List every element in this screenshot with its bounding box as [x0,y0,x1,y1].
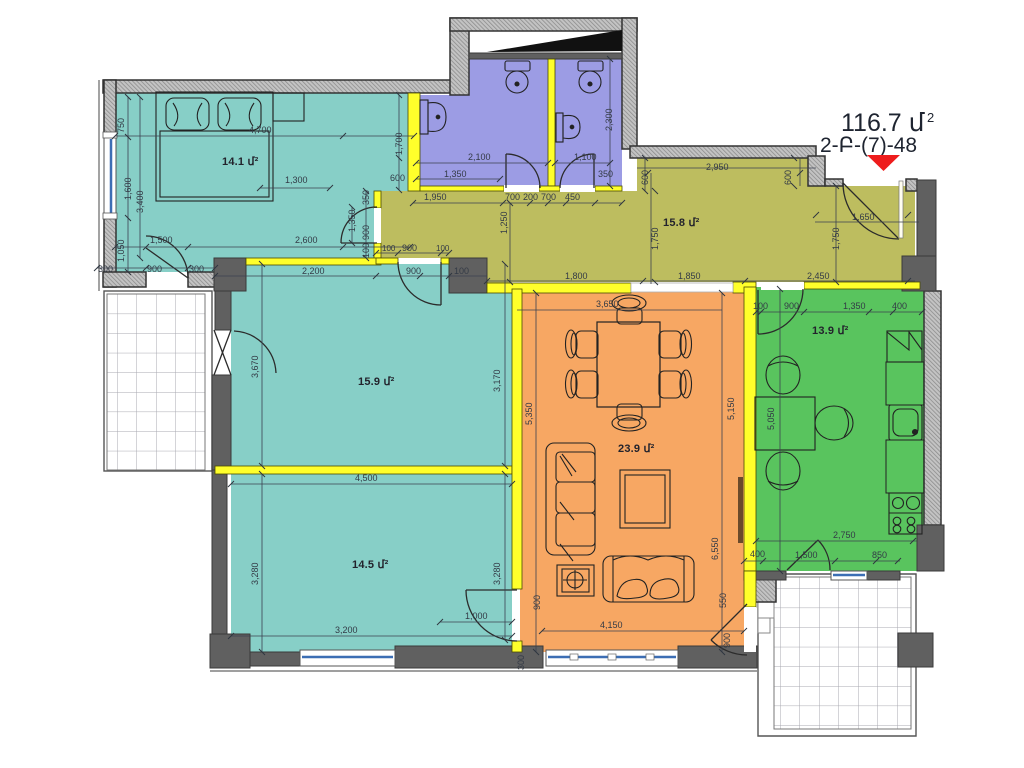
svg-text:300: 300 [189,264,204,274]
svg-text:450: 450 [565,192,580,202]
svg-text:5,150: 5,150 [726,397,736,420]
svg-text:13.9 մ²: 13.9 մ² [812,325,849,337]
svg-text:1,100: 1,100 [574,152,597,162]
svg-text:100: 100 [361,243,371,258]
svg-text:15.9 մ²: 15.9 մ² [358,376,395,388]
svg-text:3,400: 3,400 [135,190,145,213]
svg-text:3,280: 3,280 [492,562,502,585]
svg-text:750: 750 [116,118,126,133]
svg-text:100: 100 [454,266,469,276]
svg-text:2-Բ-(7)-48: 2-Բ-(7)-48 [820,134,917,157]
svg-text:350: 350 [598,169,613,179]
svg-text:850: 850 [872,550,887,560]
svg-text:1,350: 1,350 [347,209,357,232]
svg-text:14.5 մ²: 14.5 մ² [352,559,389,571]
svg-text:1,850: 1,850 [678,271,701,281]
svg-text:116.7 մ: 116.7 մ [841,109,926,137]
svg-text:3,280: 3,280 [250,562,260,585]
svg-text:4,700: 4,700 [249,125,272,135]
svg-text:6,550: 6,550 [710,537,720,560]
svg-text:2,100: 2,100 [468,152,491,162]
svg-text:1,350: 1,350 [843,301,866,311]
svg-text:900: 900 [406,266,421,276]
svg-text:900: 900 [722,633,732,648]
svg-text:23.9 մ²: 23.9 մ² [618,443,655,455]
svg-text:3,650: 3,650 [596,299,619,309]
svg-text:1,600: 1,600 [123,177,133,200]
svg-text:1,800: 1,800 [565,271,588,281]
svg-text:2: 2 [927,110,934,125]
svg-text:3,670: 3,670 [250,355,260,378]
svg-text:900: 900 [532,595,542,610]
svg-text:1,500: 1,500 [795,550,818,560]
svg-text:100: 100 [753,301,768,311]
svg-text:1,750: 1,750 [650,227,660,250]
svg-text:900: 900 [147,264,162,274]
svg-text:5,050: 5,050 [766,407,776,430]
svg-text:1,650: 1,650 [852,212,875,222]
svg-text:100: 100 [382,244,396,253]
svg-text:14.1 մ²: 14.1 մ² [222,156,259,168]
svg-text:350: 350 [361,190,371,205]
svg-text:1,300: 1,300 [285,175,308,185]
svg-text:400: 400 [892,301,907,311]
svg-text:1,250: 1,250 [499,211,509,234]
svg-text:900: 900 [361,225,371,240]
svg-text:300: 300 [98,264,113,274]
svg-text:2,300: 2,300 [604,108,614,131]
svg-text:550: 550 [718,593,728,608]
svg-text:900: 900 [784,301,799,311]
svg-text:600: 600 [390,173,405,183]
svg-text:1,500: 1,500 [150,235,173,245]
svg-text:2,750: 2,750 [833,530,856,540]
svg-text:2,200: 2,200 [302,266,325,276]
svg-text:15.8 մ²: 15.8 մ² [663,217,700,229]
svg-text:400: 400 [750,549,765,559]
svg-text:4,150: 4,150 [600,620,623,630]
svg-text:3,200: 3,200 [335,625,358,635]
svg-text:2,600: 2,600 [295,235,318,245]
svg-text:2,450: 2,450 [807,271,830,281]
svg-text:1,700: 1,700 [394,132,404,155]
svg-text:600: 600 [783,170,793,185]
svg-text:1,000: 1,000 [465,611,488,621]
svg-text:1,050: 1,050 [116,239,126,262]
svg-text:1,950: 1,950 [424,192,447,202]
svg-text:5,350: 5,350 [524,402,534,425]
svg-text:300: 300 [516,655,526,670]
svg-text:1,750: 1,750 [831,227,841,250]
svg-text:4,500: 4,500 [355,473,378,483]
svg-text:3,170: 3,170 [492,369,502,392]
svg-text:2,950: 2,950 [706,162,729,172]
svg-text:200: 200 [523,192,538,202]
svg-text:700: 700 [541,192,556,202]
svg-text:1,350: 1,350 [444,169,467,179]
